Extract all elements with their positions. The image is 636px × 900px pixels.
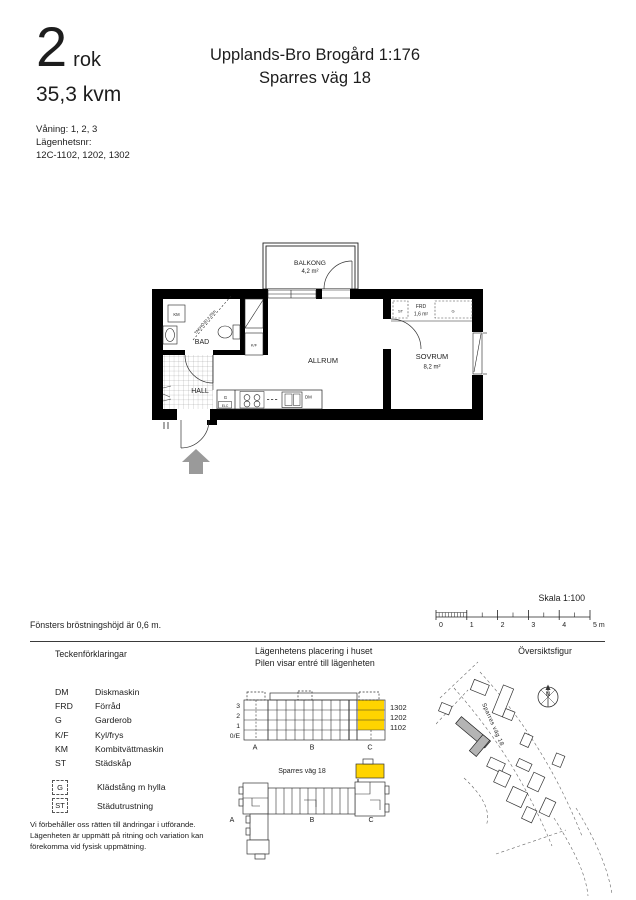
window-sill-note: Fönsters bröstningshöjd är 0,6 m. <box>30 620 161 630</box>
ceiling-height-note: TAKHÖJD 2,25m <box>193 308 217 335</box>
floors-line: Våning: 1, 2, 3 <box>36 123 130 136</box>
kitchen-elc-label: ELC <box>222 404 229 408</box>
storage-st-label: ST <box>398 309 404 314</box>
legend-item-km: KM Kombitvättmaskin <box>55 744 166 758</box>
section-divider <box>30 641 605 642</box>
floor-label-3: 3 <box>236 703 240 710</box>
floorplan-drawing: BALKONG 4,2 m² <box>145 222 495 480</box>
roads <box>436 662 612 896</box>
storage-area: 1,6 m² <box>414 312 429 318</box>
scale-fine-comb <box>436 613 467 618</box>
title-line-2: Sparres väg 18 <box>150 67 480 90</box>
dishwasher-label: DM <box>305 395 312 400</box>
placement-title: Lägenhetens placering i huset Pilen visa… <box>255 646 375 669</box>
scale-label: Skala 1:100 <box>470 593 585 603</box>
apartment-numbers: 12C-1102, 1202, 1302 <box>36 149 130 162</box>
legend-title: Teckenförklaringar <box>55 649 127 659</box>
scale-tick-3: 3 <box>531 622 535 629</box>
header-left: 2 rok 35,3 kvm Våning: 1, 2, 3 Lägenhets… <box>36 20 130 162</box>
legend-boxed-item-g: G Klädstång m hylla <box>55 778 166 797</box>
bedroom-window-icon <box>473 333 487 374</box>
storage-g-label: G <box>451 309 454 314</box>
building-footprint: Sparres väg 18 <box>222 756 418 868</box>
section-tick-marks <box>164 422 168 429</box>
legend-item-g: G Garderob <box>55 715 166 729</box>
scale-tick-5: 5 m <box>593 622 605 629</box>
storage-strip <box>391 301 472 321</box>
hall-label: HALL <box>191 388 209 395</box>
apartment-number-1102: 1102 <box>390 723 406 732</box>
floor-label-2: 2 <box>236 713 240 720</box>
bathroom-fixtures <box>163 295 240 344</box>
legend-item-kf: K/F Kyl/frys <box>55 730 166 744</box>
footprint-section-a: A <box>230 817 235 824</box>
legend-item-dm: DM Diskmaskin <box>55 687 166 701</box>
dashed-box-icon: G <box>52 780 68 795</box>
neighbor-buildings <box>438 679 564 823</box>
rooms-count: 2 <box>36 20 66 74</box>
scale-tick-2: 2 <box>501 622 505 629</box>
scale-tick-0: 0 <box>439 622 443 629</box>
bedroom-area: 8,2 m² <box>423 365 440 371</box>
disclaimer-line-2: Lägenheten är uppmätt på ritning och var… <box>30 831 204 842</box>
apartment-number-1202: 1202 <box>390 713 407 722</box>
disclaimer-line-1: Vi förbehåller oss rätten till ändringar… <box>30 820 204 831</box>
kitchen-counter <box>217 390 322 409</box>
storage-label: FRD <box>416 304 427 310</box>
livingroom-label: ALLRUM <box>308 356 338 365</box>
balcony-door-swing-icon <box>324 261 352 289</box>
overview-map: Sparres väg 18 N <box>436 658 636 900</box>
document-title: Upplands-Bro Brogård 1:176 Sparres väg 1… <box>150 44 480 90</box>
legend: DM Diskmaskin FRD Förråd G Garderob K/F … <box>55 687 166 815</box>
floorplan-page: 2 rok 35,3 kvm Våning: 1, 2, 3 Lägenhets… <box>0 0 636 900</box>
subject-building <box>448 717 491 758</box>
highlighted-unit <box>356 764 384 778</box>
toilet-tank-icon <box>233 325 240 339</box>
placement-title-line-1: Lägenhetens placering i huset <box>255 646 375 658</box>
floor-label-1: 1 <box>236 723 240 730</box>
scale-tick-1: 1 <box>470 622 474 629</box>
building-elevation: 3 2 1 0/E 1302 1202 1102 A B C <box>222 686 418 754</box>
toilet-icon <box>218 326 232 338</box>
balcony-label: BALKONG <box>294 260 326 267</box>
apartment-area: 35,3 kvm <box>36 83 130 107</box>
scale-tick-4: 4 <box>562 622 566 629</box>
dashed-box-icon: ST <box>52 798 68 813</box>
disclaimer-line-3: förekomma vid fysisk uppmätning. <box>30 842 204 853</box>
section-label-c: C <box>367 743 372 752</box>
kitchen-cabinet-label: G <box>224 395 228 400</box>
entry-arrow-icon <box>182 449 210 474</box>
compass-north-label: N <box>546 691 551 698</box>
washer-label: KM <box>173 312 180 317</box>
floor-label-0e: 0/E <box>230 733 241 740</box>
legend-item-frd: FRD Förråd <box>55 701 166 715</box>
footprint-section-b: B <box>310 817 315 824</box>
footprint-section-c: C <box>368 817 373 824</box>
scale-bar: 0 1 2 3 4 5 m <box>430 606 610 632</box>
apartment-number-1302: 1302 <box>390 703 407 712</box>
apartment-number-label: Lägenhetsnr: <box>36 136 130 149</box>
rooms-suffix: rok <box>73 49 101 72</box>
section-label-b: B <box>310 743 315 752</box>
footprint-street-label: Sparres väg 18 <box>278 768 326 775</box>
legend-item-st: ST Städskåp <box>55 758 166 772</box>
entry-door-swing-icon <box>181 420 209 448</box>
section-label-a: A <box>253 743 258 752</box>
balcony-area: 4,2 m² <box>301 269 318 275</box>
placement-title-line-2: Pilen visar entré till lägenheten <box>255 658 375 670</box>
disclaimer: Vi förbehåller oss rätten till ändringar… <box>30 820 204 852</box>
overview-title: Översiktsfigur <box>495 646 595 656</box>
legend-boxed-item-st: ST Städutrustning <box>55 797 166 816</box>
bathroom-label: BAD <box>195 339 209 346</box>
highlighted-apartments <box>358 700 384 730</box>
bedroom-label: SOVRUM <box>416 352 448 361</box>
title-line-1: Upplands-Bro Brogård 1:176 <box>150 44 480 67</box>
fridge-label: K/F <box>251 343 258 348</box>
bedroom-door-swing-icon <box>391 319 421 349</box>
